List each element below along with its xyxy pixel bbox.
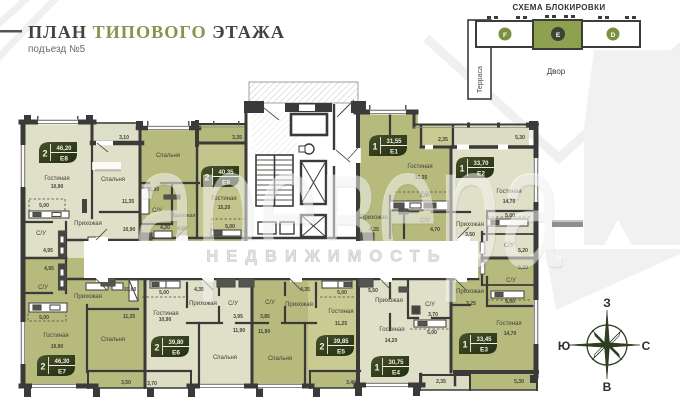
svg-text:E7: E7 — [58, 369, 66, 376]
svg-text:подъезд №5: подъезд №5 — [28, 44, 86, 55]
svg-text:46,30: 46,30 — [54, 359, 70, 365]
svg-text:2: 2 — [42, 149, 47, 159]
svg-text:Спальня: Спальня — [101, 337, 125, 343]
svg-text:46,20: 46,20 — [56, 146, 72, 152]
svg-text:5,30: 5,30 — [514, 379, 524, 385]
svg-text:39,85: 39,85 — [333, 339, 349, 345]
svg-text:10,90: 10,90 — [51, 184, 64, 190]
svg-text:5,00: 5,00 — [39, 315, 49, 321]
svg-text:11,35: 11,35 — [122, 199, 134, 205]
svg-text:14,70: 14,70 — [504, 331, 517, 337]
svg-text:3,50: 3,50 — [121, 380, 131, 386]
svg-text:1: 1 — [462, 340, 467, 350]
svg-text:2: 2 — [40, 362, 45, 372]
svg-text:4,95: 4,95 — [44, 266, 54, 272]
svg-text:Гостиная: Гостиная — [44, 176, 69, 182]
svg-text:З: З — [603, 296, 611, 310]
svg-text:Прихожая: Прихожая — [74, 221, 102, 227]
svg-text:С: С — [642, 339, 651, 353]
svg-text:2: 2 — [154, 343, 159, 353]
svg-text:3,70: 3,70 — [147, 381, 157, 387]
svg-text:Спальня: Спальня — [268, 356, 292, 362]
svg-text:Двор: Двор — [547, 67, 566, 76]
svg-text:D: D — [611, 32, 616, 39]
svg-text:С/У: С/У — [36, 231, 46, 237]
svg-text:Гостиная: Гостиная — [496, 321, 521, 327]
svg-text:3,40: 3,40 — [346, 380, 356, 386]
svg-text:ПЛАН ТИПОВОГО ЭТАЖА: ПЛАН ТИПОВОГО ЭТАЖА — [28, 22, 285, 42]
svg-text:2: 2 — [319, 342, 324, 352]
svg-text:Спальня: Спальня — [213, 355, 237, 361]
svg-text:3,85: 3,85 — [260, 314, 270, 320]
svg-text:E: E — [556, 32, 561, 39]
svg-text:В: В — [603, 380, 612, 394]
svg-text:11,90: 11,90 — [258, 329, 270, 335]
svg-text:Прихожая: Прихожая — [74, 294, 102, 300]
svg-text:3,95: 3,95 — [233, 314, 243, 320]
svg-text:3,70: 3,70 — [428, 312, 438, 318]
svg-text:Гостиная: Гостиная — [328, 309, 353, 315]
svg-text:F: F — [503, 32, 507, 39]
svg-text:5,00: 5,00 — [39, 203, 49, 209]
svg-text:Гостиная: Гостиная — [379, 327, 404, 333]
svg-text:11,25: 11,25 — [335, 321, 347, 327]
svg-text:E5: E5 — [337, 349, 345, 356]
svg-text:С/У: С/У — [38, 285, 48, 291]
svg-text:Терраса: Терраса — [477, 66, 484, 93]
svg-text:5,00: 5,00 — [427, 330, 437, 336]
svg-text:10,90: 10,90 — [159, 317, 172, 323]
svg-text:E4: E4 — [392, 370, 400, 377]
svg-text:33,45: 33,45 — [476, 337, 492, 343]
svg-text:11,35: 11,35 — [123, 314, 135, 320]
svg-text:3,10: 3,10 — [119, 135, 129, 141]
svg-text:СХЕМА БЛОКИРОВКИ: СХЕМА БЛОКИРОВКИ — [512, 3, 605, 12]
svg-text:E6: E6 — [172, 350, 180, 357]
svg-text:1: 1 — [374, 363, 379, 373]
svg-text:4,95: 4,95 — [43, 248, 53, 254]
svg-text:E8: E8 — [60, 156, 68, 163]
svg-text:30,75: 30,75 — [388, 360, 404, 366]
svg-text:Ю: Ю — [558, 339, 570, 353]
svg-text:НЕДВИЖИМОСТЬ: НЕДВИЖИМОСТЬ — [206, 248, 447, 266]
svg-text:2,35: 2,35 — [436, 379, 446, 385]
svg-text:Гостиная: Гостиная — [43, 333, 68, 339]
svg-text:39,80: 39,80 — [168, 340, 184, 346]
svg-text:Спальня: Спальня — [101, 177, 125, 183]
svg-text:E3: E3 — [480, 347, 488, 354]
svg-text:14,20: 14,20 — [385, 338, 398, 344]
svg-text:11,90: 11,90 — [233, 328, 245, 334]
svg-text:10,90: 10,90 — [51, 344, 64, 350]
